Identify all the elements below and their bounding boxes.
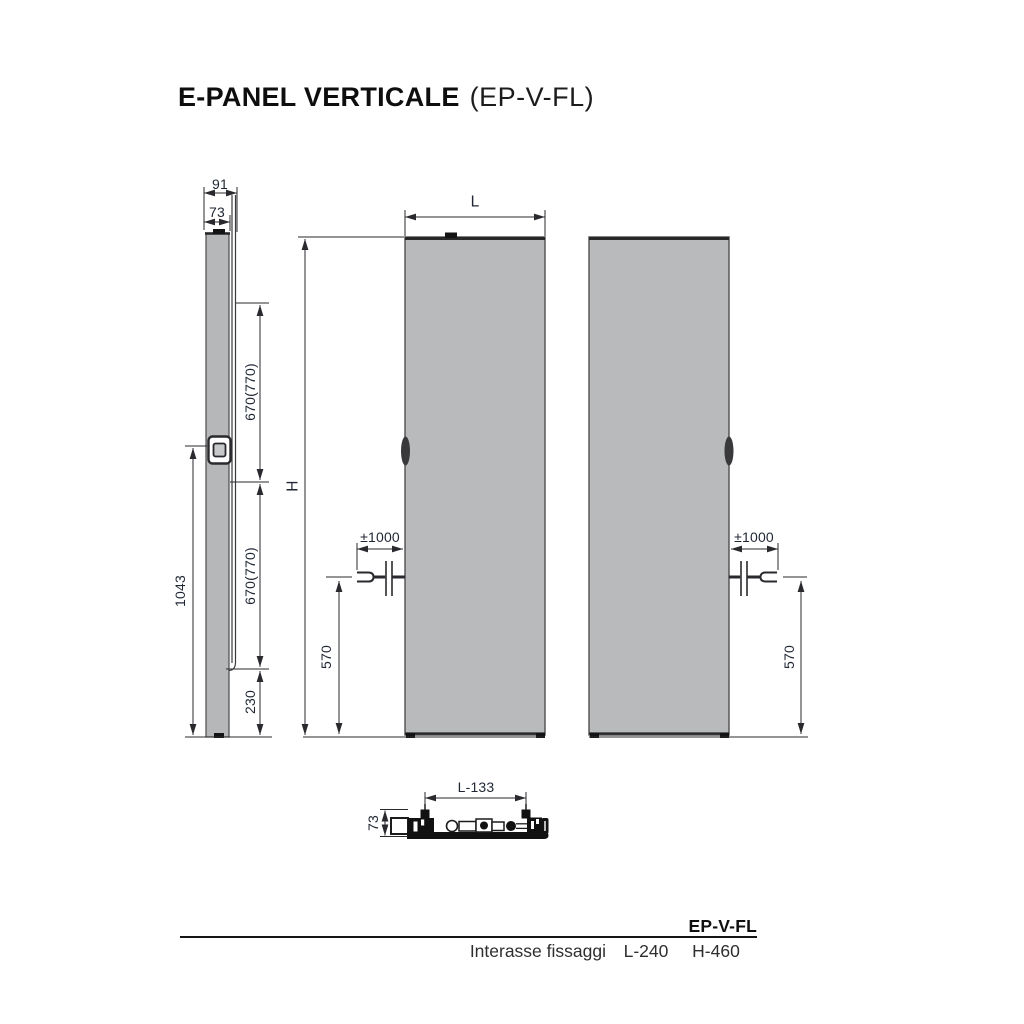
air-vent [445,233,457,239]
side-view [205,195,236,738]
dim-label-cable-height-left: 570 [319,645,333,669]
dim-label-cable-length-right: ±1000 [734,530,774,544]
thermostat-knob [725,437,734,466]
thermostat-knob [401,437,410,466]
panel-body [589,237,729,735]
section-bolt [480,822,488,830]
bracket-head-right [522,810,531,819]
dim-label-bottom-offset: 230 [243,690,257,714]
section-base-bar [407,832,549,839]
front-view-right-panel [589,237,777,738]
panel-body [405,237,545,735]
top-view-section [391,804,549,839]
section-roller [447,821,458,832]
section-block [459,822,476,832]
dim-label-upper-spacing: 670(770) [243,363,257,421]
dim-label-cable-height-right: 570 [782,645,796,669]
side-air-vent [213,229,225,234]
footer-row-label: Interasse fissaggi [444,941,606,962]
front-view-left-panel [357,233,545,739]
dim-label-bracket-spacing: L-133 [458,780,495,794]
bracket-slot [536,819,539,824]
dim-label-height-H: H [285,480,301,491]
bracket-slot [421,820,424,826]
section-dot [506,821,516,831]
dim-label-width-L: L [471,194,480,210]
dimension-drawing [0,0,1024,1024]
power-cable-icon [357,561,405,596]
bracket-cluster-right [527,818,542,834]
dim-label-depth-panel: 73 [209,205,225,219]
panel-edge-profile [391,818,408,834]
dim-label-cable-length-left: ±1000 [360,530,400,544]
plug-icon [760,573,777,582]
side-panel-body [206,233,229,737]
dim-label-lower-spacing: 670(770) [243,547,257,605]
side-thermostat-knob [214,444,226,457]
power-cable-icon [729,561,777,596]
dim-label-depth-bottom: 73 [366,815,380,831]
footer-divider [180,936,757,938]
footer-value-l: L-240 [612,941,680,962]
dim-label-fixing-height: 1043 [173,575,187,607]
footer-value-h: H-460 [682,941,750,962]
section-block [492,822,504,831]
footer-model-code: EP-V-FL [600,916,757,937]
plug-icon [357,573,374,582]
bracket-slot [414,822,418,832]
dim-label-depth-total: 91 [212,177,228,191]
bracket-slot [531,821,534,829]
bracket-head-left [421,810,430,819]
technical-drawing-page: E-PANEL VERTICALE(EP-V-FL) [0,0,1024,1024]
